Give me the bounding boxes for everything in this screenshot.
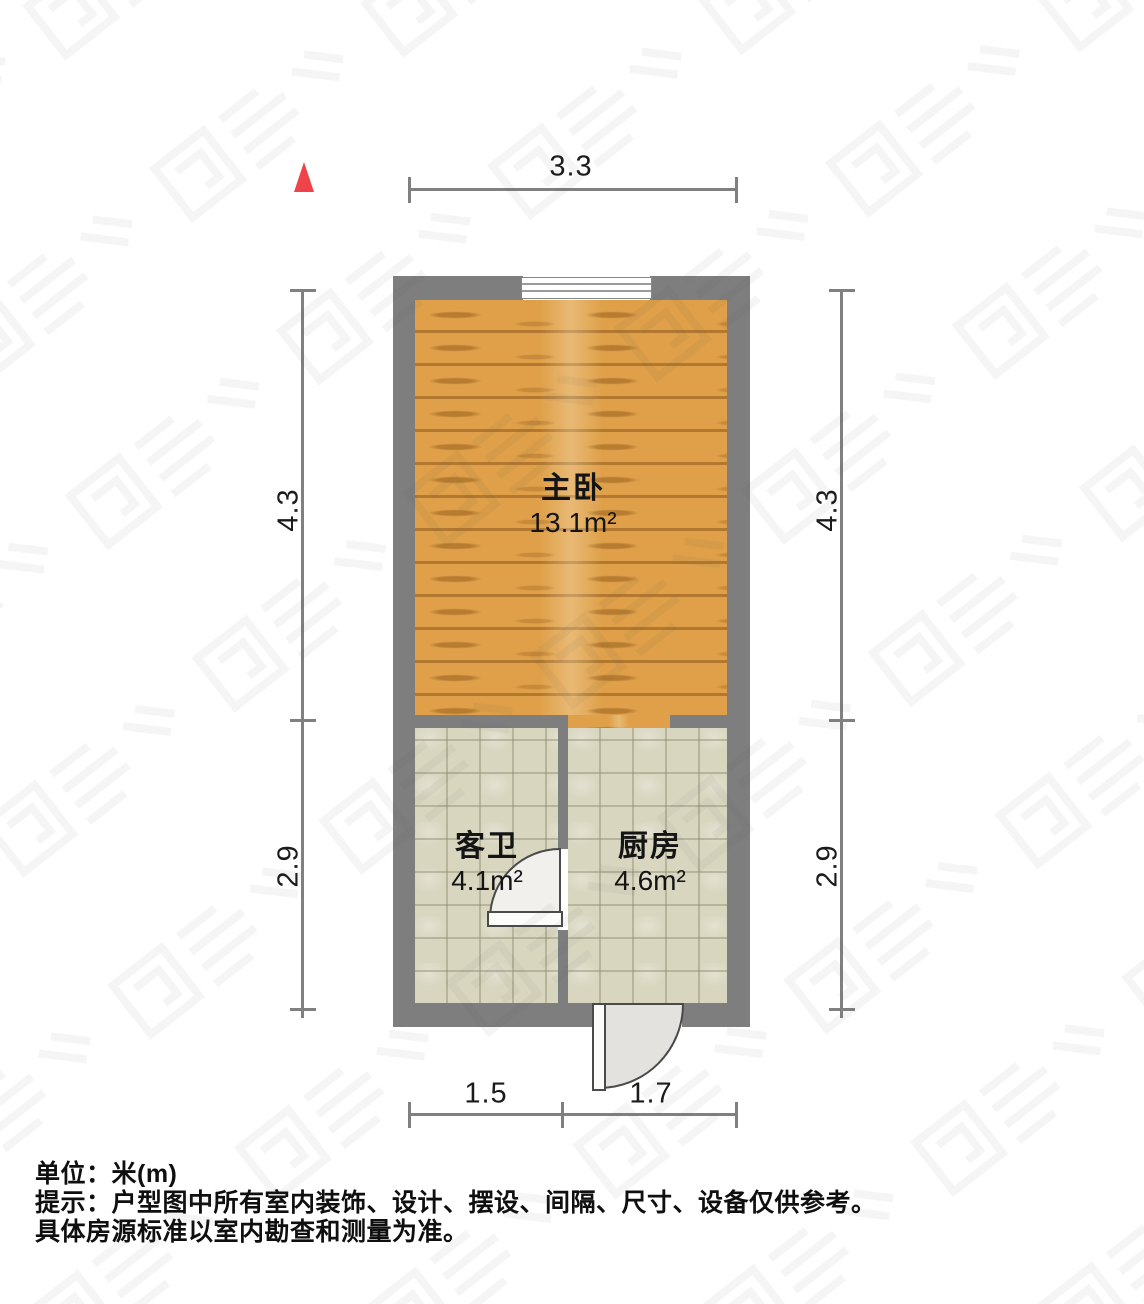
dim-value-top: 3.3 [549,151,592,184]
room-label-bedroom: 主卧 13.1m² [529,472,616,539]
interior-wall-divider-upper [558,728,568,849]
floor-plan-canvas: 主卧 13.1m² 客卫 4.1m² 厨房 4.6m² 3.3 4.3 2.9 … [0,0,1144,1304]
unit-line: 单位：米(m) [35,1160,877,1189]
tip-line-2: 具体房源标准以室内勘查和测量为准。 [35,1218,877,1247]
dim-tick [735,177,738,203]
dim-value-right-upper: 4.3 [812,488,845,531]
disclaimer-text: 单位：米(m) 提示：户型图中所有室内装饰、设计、摆设、间隔、尺寸、设备仅供参考… [35,1160,877,1247]
entry-door-leaf [593,1004,605,1090]
bedroom-window [521,277,652,299]
north-arrow-icon [294,162,314,192]
dim-line-right [840,291,843,1018]
interior-wall-bedroom-bathroom [415,715,568,728]
dim-value-bottom-left: 1.5 [464,1078,507,1111]
outer-wall-left [393,276,415,1027]
room-label-kitchen: 厨房 4.6m² [614,830,686,897]
outer-wall-top-right-segment [650,276,727,300]
bathroom-name: 客卫 [451,830,523,864]
interior-wall-bedroom-kitchen [670,715,727,728]
dim-tick [829,1008,855,1011]
bedroom-kitchen-passage-floor [568,715,670,728]
dim-tick [408,1102,411,1128]
outer-wall-right [727,276,750,1027]
dim-line-bottom [410,1113,737,1116]
dim-tick [561,1102,564,1128]
bedroom-area: 13.1m² [529,506,616,539]
dim-tick [829,719,855,722]
dim-value-left-lower: 2.9 [273,844,306,887]
dim-value-right-lower: 2.9 [812,844,845,887]
outer-wall-bottom-left-segment [415,1003,593,1027]
entry-door-arc [599,1004,683,1088]
kitchen-name: 厨房 [614,830,686,864]
kitchen-area: 4.6m² [614,864,686,897]
tip-line-1: 提示：户型图中所有室内装饰、设计、摆设、间隔、尺寸、设备仅供参考。 [35,1189,877,1218]
dim-line-left [301,291,304,1018]
dim-tick [735,1102,738,1128]
bathroom-area: 4.1m² [451,864,523,897]
outer-wall-top-left-segment [415,276,523,300]
bedroom-name: 主卧 [529,472,616,506]
room-label-bathroom: 客卫 4.1m² [451,830,523,897]
dim-tick [829,289,855,292]
dim-tick [408,177,411,203]
dim-tick [290,719,316,722]
interior-wall-divider-lower [558,930,568,1003]
dim-tick [290,1008,316,1011]
dim-value-bottom-right: 1.7 [629,1078,672,1111]
dim-value-left-upper: 4.3 [273,488,306,531]
dim-line-top [410,188,737,191]
outer-wall-bottom-right-segment [682,1003,727,1027]
dim-tick [290,289,316,292]
